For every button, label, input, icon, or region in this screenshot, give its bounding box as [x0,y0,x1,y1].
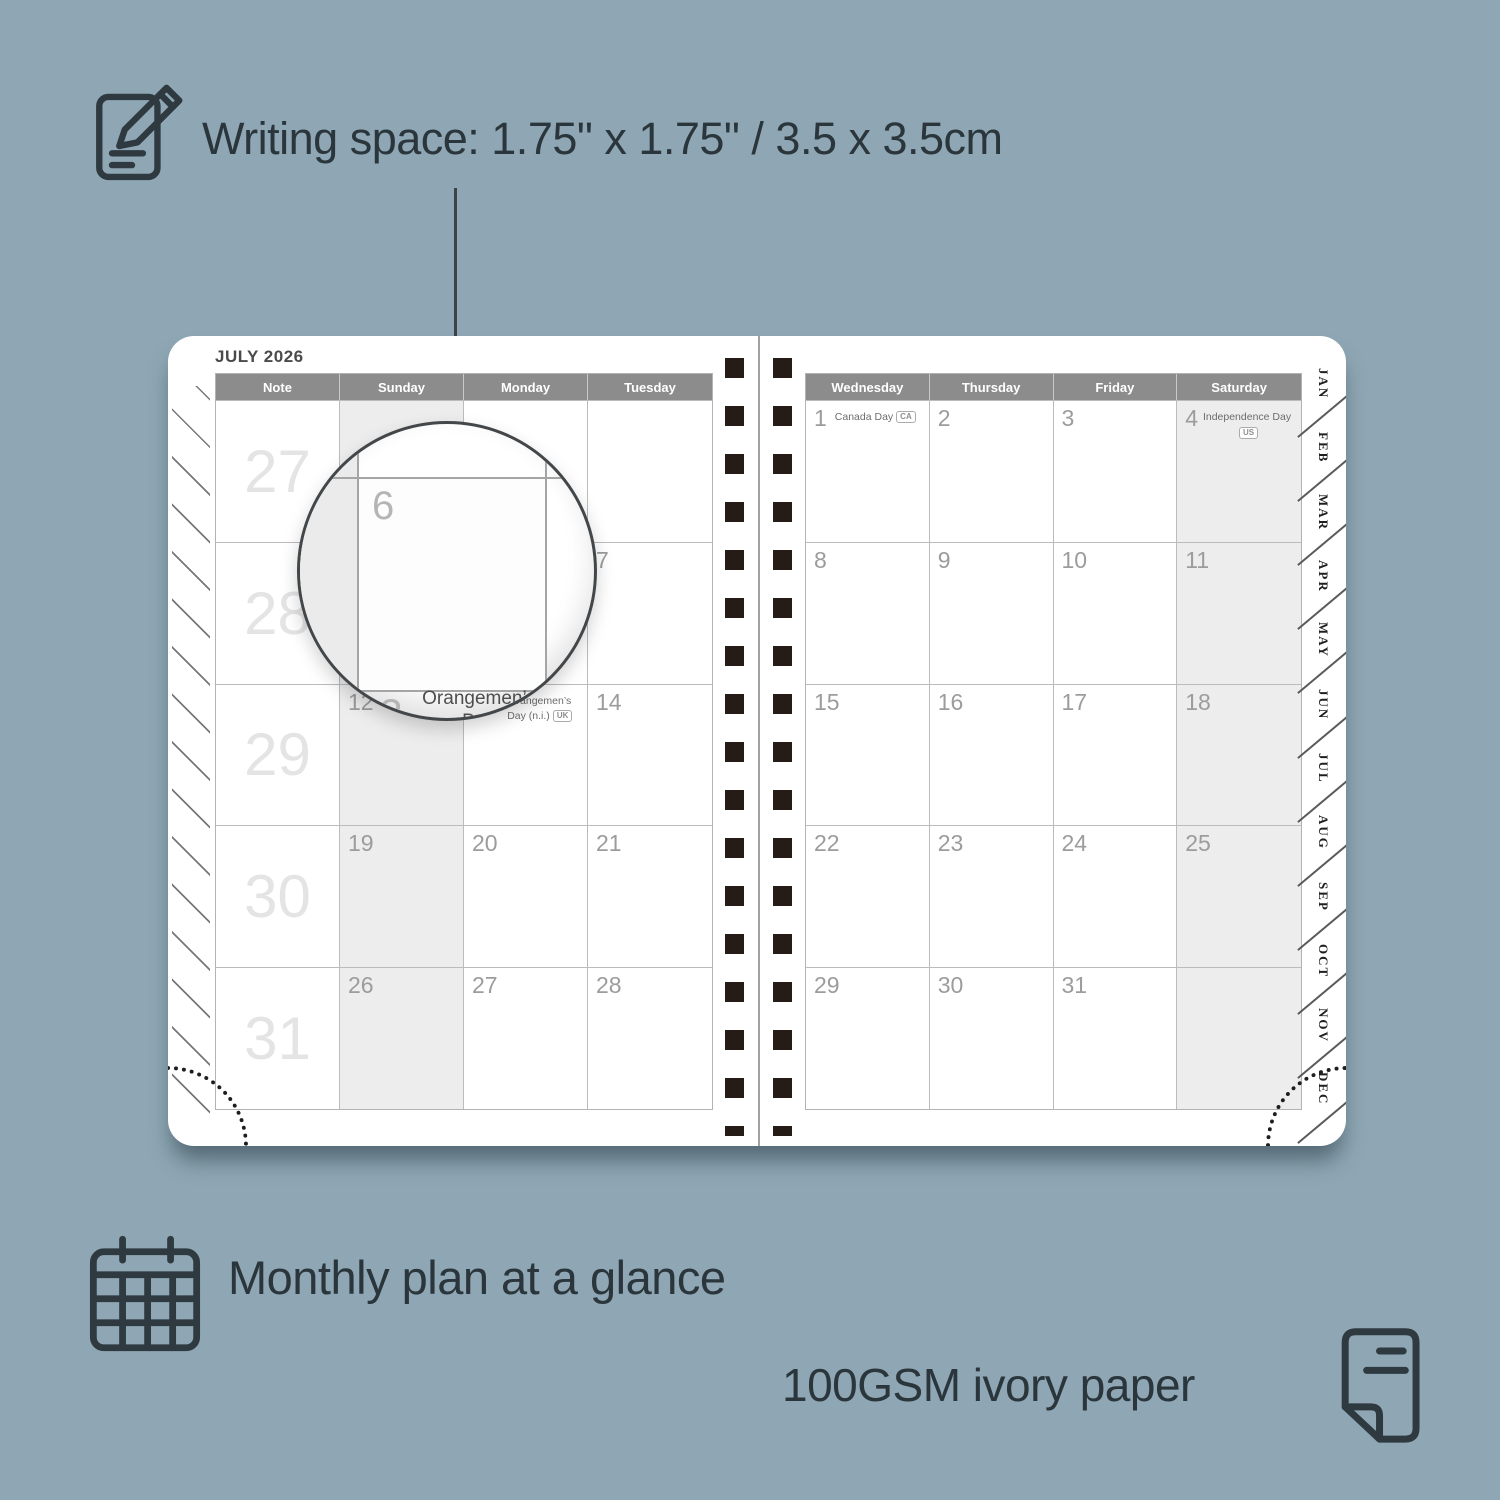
week-number [588,543,712,684]
month-tab: MAR [1300,480,1346,544]
week-number: 31 [216,968,339,1109]
week-number [464,826,587,967]
calendar-cell: 23 [930,825,1054,967]
calendar-cell: 10 [1054,542,1178,684]
page-spine [758,336,760,1146]
week-number [930,826,1053,967]
magnified-next-day-number: 13 [356,690,403,721]
month-tab: SEP [1300,865,1346,929]
week-number [806,401,929,542]
calendar-cell: 1 Canada DayCA [806,400,930,542]
magnified-day-number: 6 [372,484,394,529]
calendar-cell: 25 [1177,825,1301,967]
week-number [1177,543,1301,684]
calendar-cell: 3 [1054,400,1178,542]
week-number [930,685,1053,826]
week-number [464,968,587,1109]
month-tab: JUL [1300,737,1346,801]
calendar-cell: 24 [1054,825,1178,967]
calendar-cell: 27 [464,967,588,1109]
calendar-cell: 18 [1177,684,1301,826]
week-number [806,543,929,684]
calendar-cell: 28 [588,967,712,1109]
calendar-cell: 15 [806,684,930,826]
month-tab: JAN [1300,352,1346,416]
week-number [930,401,1053,542]
right-page-grid: WednesdayThursdayFridaySaturday 1 Canada… [805,373,1302,1110]
week-number [340,968,463,1109]
paper-sheet-icon [1328,1314,1430,1460]
month-title: JULY 2026 [215,347,304,367]
calendar-cell: 8 [806,542,930,684]
month-tab: APR [1300,544,1346,608]
month-tab: OCT [1300,929,1346,993]
week-number [1054,826,1177,967]
week-number [588,968,712,1109]
magnified-holiday-label: Orangemen’s Day (n.i.) UK [404,688,554,721]
left-edge-hatch [172,386,210,1121]
spiral-binding-holes [725,358,744,1136]
calendar-cell: 30 [216,825,340,967]
week-number [588,685,712,826]
week-number [1054,543,1177,684]
month-tab: MAY [1300,608,1346,672]
week-number [1177,968,1301,1109]
calendar-cell: 7 [588,542,712,684]
day-header: Wednesday [806,374,930,400]
week-number: 30 [216,826,339,967]
calendar-cell [588,400,712,542]
calendar-cell: 31 [216,967,340,1109]
calendar-cell: 19 [340,825,464,967]
week-number [1177,826,1301,967]
calendar-cell: 22 [806,825,930,967]
calendar-cell: 9 [930,542,1054,684]
monthly-plan-label: Monthly plan at a glance [228,1250,726,1305]
week-number [340,826,463,967]
spiral-binding-holes [773,358,792,1136]
week-number [930,543,1053,684]
week-number [1054,685,1177,826]
month-tab: JUN [1300,672,1346,736]
calendar-cell: 26 [340,967,464,1109]
magnified-sunday-shade [300,424,358,718]
magnifier-circle: 6 13 Orangemen’s Day (n.i.) UK [297,421,597,721]
week-number [806,968,929,1109]
week-number [1054,401,1177,542]
day-header: Saturday [1177,374,1301,400]
calendar-cell: 20 [464,825,588,967]
calendar-cell: 14 [588,684,712,826]
day-header: Note [216,374,340,400]
product-image: Writing space: 1.75" x 1.75" / 3.5 x 3.5… [0,0,1500,1500]
calendar-cell: 30 [930,967,1054,1109]
calendar-grid-icon [85,1232,205,1354]
calendar-cell: 17 [1054,684,1178,826]
week-number [1177,685,1301,826]
day-header: Tuesday [588,374,712,400]
calendar-cell: 21 [588,825,712,967]
paper-label: 100GSM ivory paper [782,1358,1195,1412]
week-number [930,968,1053,1109]
calendar-cell: 16 [930,684,1054,826]
calendar-cell: 29 [806,967,930,1109]
notepad-pencil-icon [92,76,192,186]
day-header: Thursday [930,374,1054,400]
calendar-cell [1177,967,1301,1109]
week-number [806,826,929,967]
day-header: Monday [464,374,588,400]
day-header: Friday [1054,374,1178,400]
week-number [588,826,712,967]
calendar-cell: 31 [1054,967,1178,1109]
week-number [588,401,712,542]
calendar-cell: 4 Independence DayUS [1177,400,1301,542]
week-number [806,685,929,826]
day-header: Sunday [340,374,464,400]
writing-space-label: Writing space: 1.75" x 1.75" / 3.5 x 3.5… [202,112,1003,166]
calendar-cell: 2 [930,400,1054,542]
week-number [1177,401,1301,542]
month-tab: FEB [1300,416,1346,480]
calendar-cell: 11 [1177,542,1301,684]
month-tab: NOV [1300,993,1346,1057]
week-number [1054,968,1177,1109]
month-tab: AUG [1300,801,1346,865]
month-tab-strip: JANFEBMARAPRMAYJUNJULAUGSEPOCTNOVDEC [1300,352,1346,1122]
